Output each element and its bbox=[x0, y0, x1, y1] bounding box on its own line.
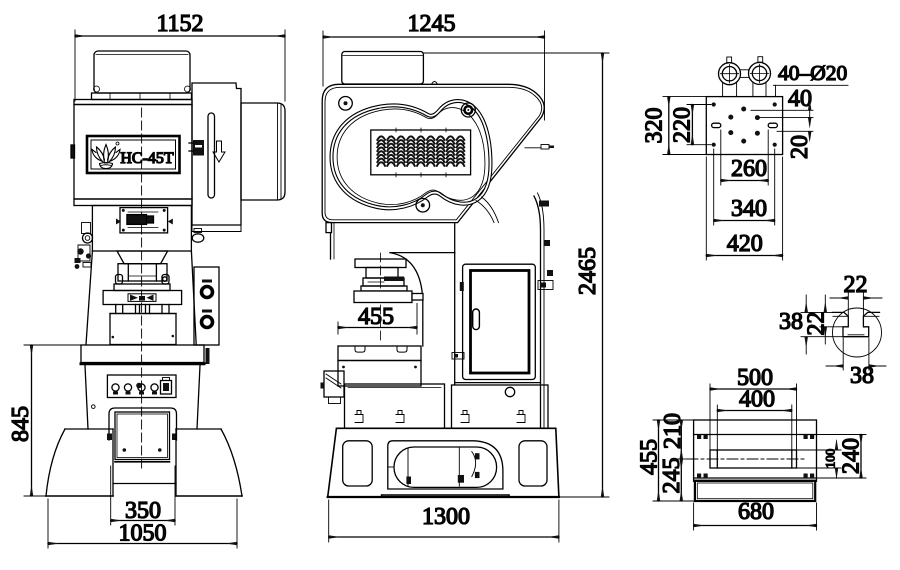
svg-text:20: 20 bbox=[787, 135, 813, 159]
svg-text:38: 38 bbox=[850, 363, 874, 389]
svg-text:210: 210 bbox=[660, 413, 686, 449]
svg-text:845: 845 bbox=[8, 406, 34, 442]
svg-text:420: 420 bbox=[727, 231, 763, 257]
svg-text:680: 680 bbox=[738, 499, 774, 525]
svg-text:100: 100 bbox=[823, 449, 838, 469]
svg-text:40: 40 bbox=[788, 86, 812, 112]
svg-text:38: 38 bbox=[779, 309, 803, 335]
svg-text:2465: 2465 bbox=[575, 247, 601, 295]
svg-text:HC-45T: HC-45T bbox=[120, 150, 174, 167]
svg-text:320: 320 bbox=[642, 108, 668, 144]
svg-text:1300: 1300 bbox=[422, 504, 470, 530]
svg-text:455: 455 bbox=[358, 304, 394, 330]
svg-text:220: 220 bbox=[670, 107, 696, 143]
svg-text:1245: 1245 bbox=[408, 11, 456, 37]
svg-text:1152: 1152 bbox=[156, 11, 203, 37]
svg-text:260: 260 bbox=[731, 156, 767, 182]
svg-text:1050: 1050 bbox=[119, 521, 167, 547]
svg-text:400: 400 bbox=[739, 387, 775, 413]
svg-text:340: 340 bbox=[731, 196, 767, 222]
svg-text:22: 22 bbox=[844, 272, 868, 298]
svg-text:40–Ø20: 40–Ø20 bbox=[778, 61, 847, 85]
